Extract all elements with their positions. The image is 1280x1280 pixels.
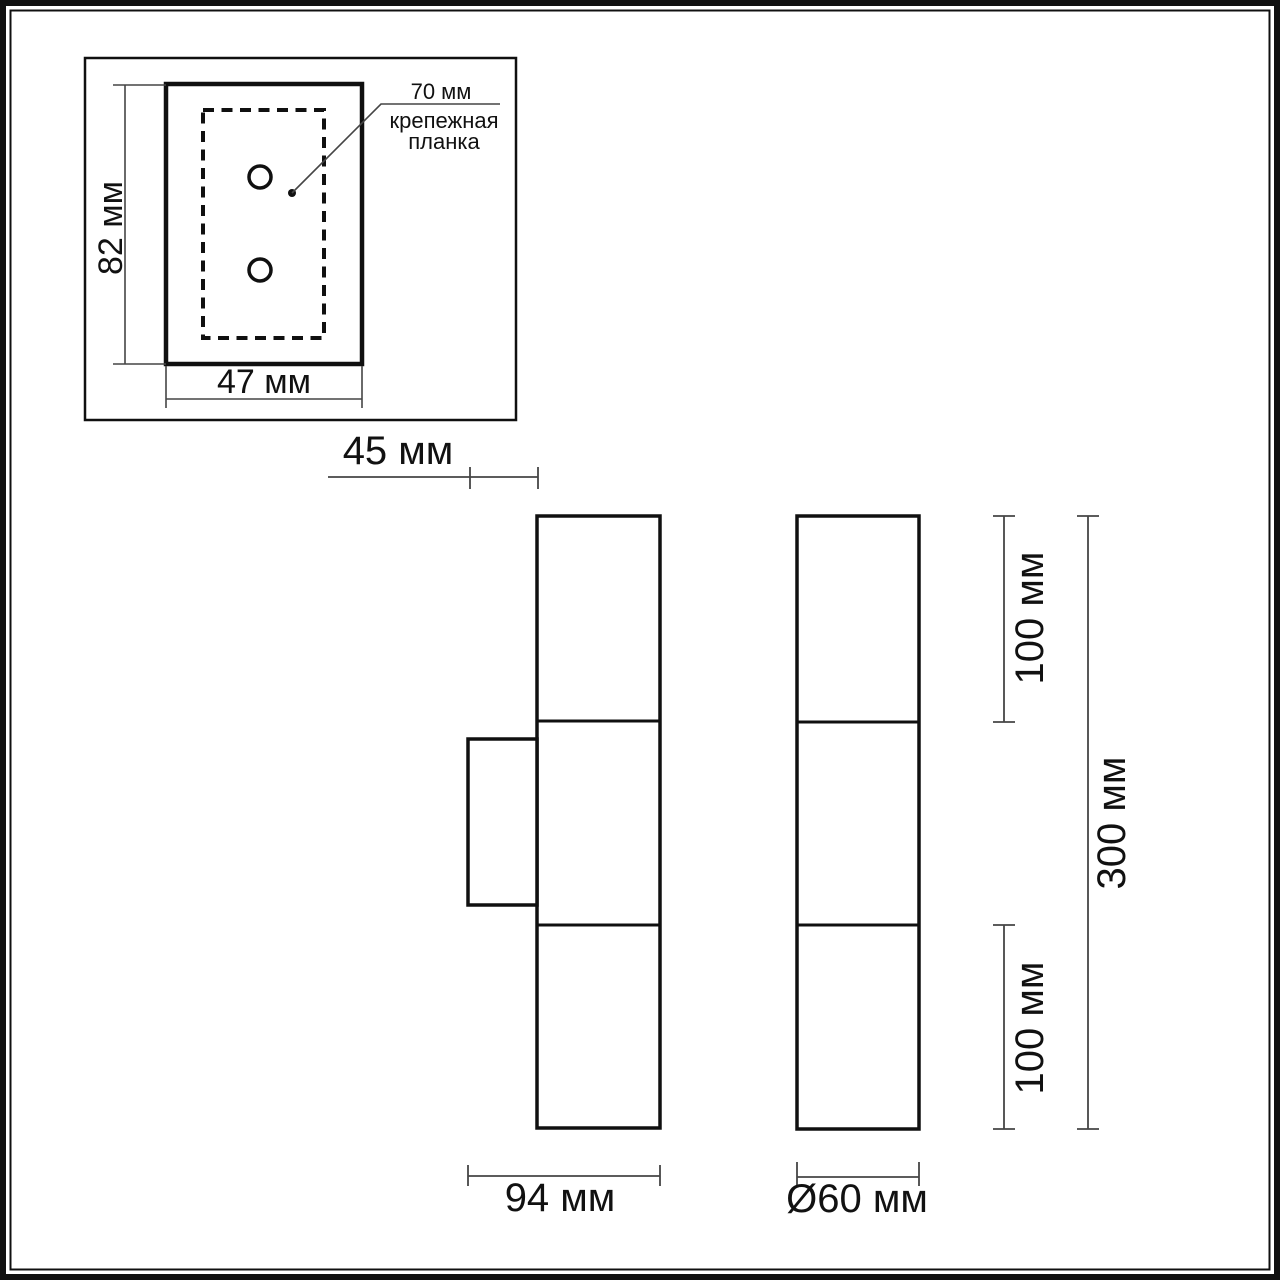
side-body-outline: [537, 516, 660, 1128]
wall-gap-dimension-label: 45 мм: [343, 429, 454, 473]
mounting-plate-detail: 70 мм крепежная планка 82 мм 47 мм: [85, 58, 516, 420]
screw-hole-bottom: [249, 259, 271, 281]
side-view: 45 мм 94 мм: [328, 429, 660, 1220]
leader-caption-line2: планка: [408, 129, 480, 154]
diameter-dimension-label: Ø60 мм: [786, 1177, 928, 1221]
front-view: 100 мм 100 мм 300 мм Ø60 мм: [786, 516, 1134, 1221]
plate-height-dimension-label: 82 мм: [92, 181, 130, 275]
plate-outline: [166, 84, 362, 364]
wall-bracket-outline: [468, 739, 537, 905]
overall-height-dimension-label: 300 мм: [1090, 757, 1134, 890]
front-body-outline: [797, 516, 919, 1129]
mounting-bracket-dashed-outline: [203, 110, 324, 338]
hole-spacing-label: 70 мм: [411, 79, 472, 104]
screw-hole-top: [249, 166, 271, 188]
lower-section-dimension-label: 100 мм: [1008, 962, 1052, 1095]
upper-section-dimension-label: 100 мм: [1008, 552, 1052, 685]
plate-width-dimension-label: 47 мм: [217, 363, 311, 401]
depth-dimension-label: 94 мм: [505, 1176, 616, 1220]
technical-drawing: 70 мм крепежная планка 82 мм 47 мм 45 мм…: [0, 0, 1280, 1280]
